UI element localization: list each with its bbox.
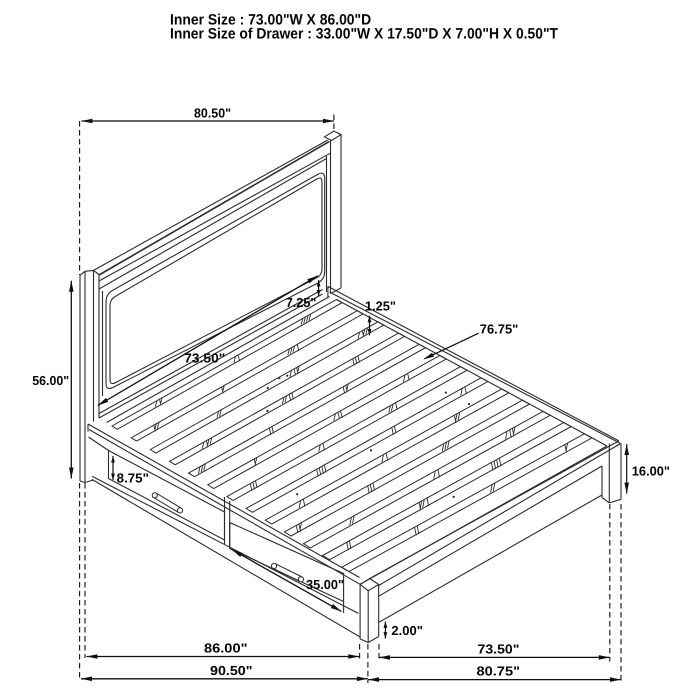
svg-text:80.50": 80.50" bbox=[194, 106, 231, 121]
svg-text:2.00": 2.00" bbox=[391, 623, 423, 638]
svg-text:7.25": 7.25" bbox=[286, 295, 317, 310]
svg-text:90.50": 90.50" bbox=[210, 663, 253, 678]
svg-text:35.00": 35.00" bbox=[306, 577, 344, 592]
svg-text:1.25": 1.25" bbox=[365, 299, 396, 314]
svg-text:Inner Size of Drawer : 33.00"W: Inner Size of Drawer : 33.00"W X 17.50"D… bbox=[170, 26, 558, 43]
svg-text:8.75": 8.75" bbox=[117, 471, 149, 486]
svg-text:73.50": 73.50" bbox=[478, 642, 520, 657]
svg-text:16.00": 16.00" bbox=[632, 464, 670, 479]
svg-text:73.50": 73.50" bbox=[184, 351, 225, 366]
svg-text:86.00": 86.00" bbox=[204, 640, 248, 655]
svg-text:80.75": 80.75" bbox=[477, 663, 521, 678]
svg-text:76.75": 76.75" bbox=[480, 322, 519, 337]
svg-text:56.00": 56.00" bbox=[32, 373, 69, 388]
